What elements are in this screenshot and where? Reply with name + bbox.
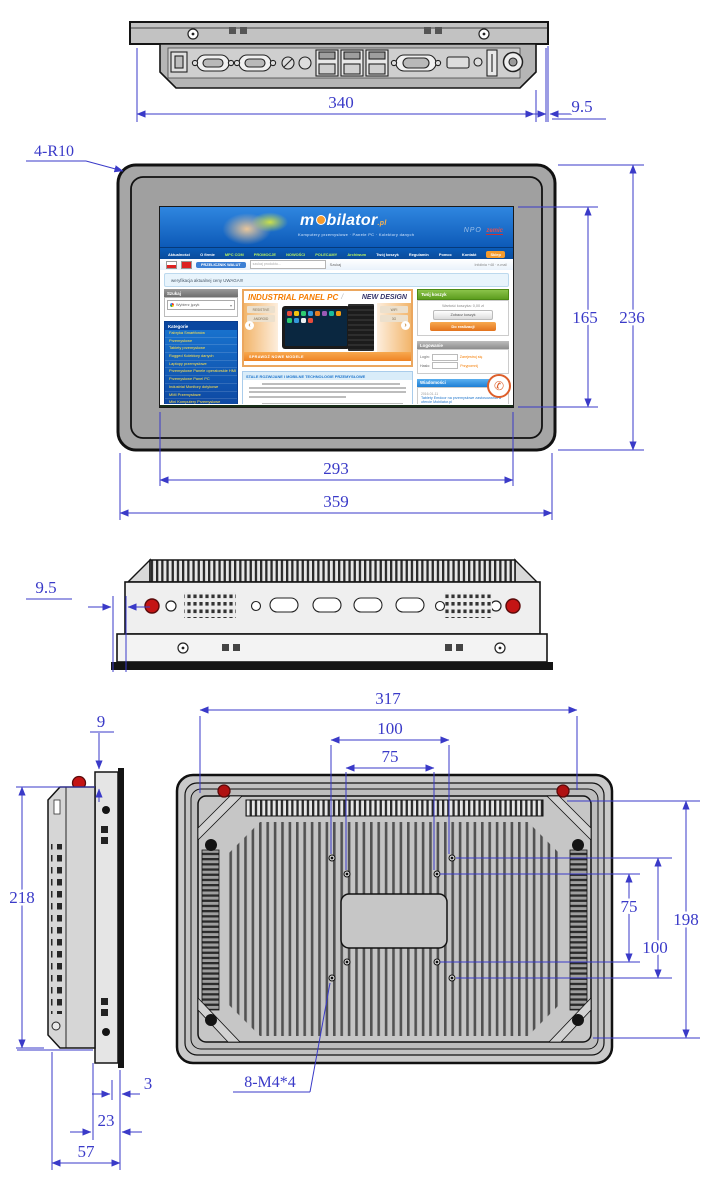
nav-item: PROMOCJE — [254, 252, 276, 257]
category-item: Mini Komputery Przemysłowe — [165, 399, 237, 404]
category-item: Fabryka Smartfonów — [165, 330, 237, 338]
heatsink-fins — [150, 560, 515, 582]
corner-hole — [572, 839, 584, 851]
dim-total-depth: 57 — [78, 1142, 96, 1161]
site-footer-bar — [160, 405, 513, 408]
banner-subtitle: NEW DESIGN — [362, 294, 407, 301]
dim-front-width: 359 — [323, 492, 349, 511]
category-menu: Kategorie Fabryka SmartfonówPrzemysłoweT… — [164, 321, 238, 404]
phone-icon: ✆ — [487, 374, 511, 398]
corner-hole — [205, 1014, 217, 1026]
view-cart-button: Zobacz koszyk — [433, 310, 493, 320]
main-column: INDUSTRIAL PANEL PC / NEW DESIGN RESISTI… — [242, 289, 413, 404]
screw-red — [506, 599, 520, 613]
header-photo — [210, 207, 298, 247]
banner-title: INDUSTRIAL PANEL PC — [248, 293, 338, 302]
category-item: Przemysłowe Panel PC — [165, 376, 237, 384]
dim-screen-height: 165 — [572, 308, 598, 327]
category-item: Laptopy przemysłowe — [165, 361, 237, 369]
cart-header: Twój koszyk — [417, 289, 509, 300]
left-column: Szukaj Wybierz język ▾ Kategorie Fabryka… — [164, 289, 238, 404]
search-widget-header: Szukaj — [164, 289, 238, 297]
label-corner-radius: 4-R10 — [34, 143, 74, 160]
carousel-next-icon: › — [401, 321, 410, 330]
vent-column — [51, 844, 62, 1014]
promo-banner: INDUSTRIAL PANEL PC / NEW DESIGN RESISTI… — [242, 289, 413, 367]
vent-grid — [444, 592, 492, 618]
register-link: Zarejestruj się — [460, 355, 483, 359]
dim-bezel: 3 — [144, 1074, 153, 1093]
article-header: STALE ROZWIJANE I MOBILNE TECHNOLOGIE PR… — [243, 372, 412, 380]
flag-en-icon — [181, 261, 192, 269]
dim-vesa75-h: 75 — [382, 747, 399, 766]
screw-red — [145, 599, 159, 613]
nav-item: POLECAMY — [315, 252, 337, 257]
category-item: Przemysłowe — [165, 338, 237, 346]
chevron-down-icon: ▾ — [230, 303, 232, 308]
nav-item: Pomoc — [439, 252, 452, 257]
category-item: Tablety przemysłowe — [165, 345, 237, 353]
search-widget: Wybierz język ▾ — [164, 297, 238, 317]
drawing-linework: 340 9.5 4-R10 165 236 293 359 9.5 — [0, 0, 711, 1188]
vent-grid — [184, 592, 236, 618]
remind-link: Przypomnij — [460, 364, 478, 368]
login-header: Logowanie — [417, 341, 509, 349]
nav-item: Aktualności — [168, 252, 190, 257]
dim-body-depth: 23 — [98, 1111, 115, 1130]
dim-side-depth: 9.5 — [35, 578, 56, 597]
category-item: Industrial Monitory dotykowe — [165, 384, 237, 392]
contact-info: Infolinia +48 · e-mail — [475, 263, 507, 267]
dim-front-height: 236 — [619, 308, 645, 327]
front-bezel-edge — [118, 768, 124, 1068]
dim-vesa100-h: 100 — [377, 719, 403, 738]
serial-port — [313, 598, 341, 612]
panel-screen-website: mbilator.pl Komputery przemysłowe · Pane… — [160, 207, 513, 407]
login-field — [432, 354, 458, 361]
category-item: MMI Przemysłowe — [165, 392, 237, 400]
banner-chip: WIFI — [380, 306, 408, 313]
rear-view — [177, 775, 612, 1063]
category-item: Przemysłowe Panele operatorskie HMI — [165, 368, 237, 376]
flag-pl-icon — [166, 261, 177, 269]
carousel-prev-icon: ‹ — [245, 321, 254, 330]
reset-hole — [474, 58, 482, 66]
nav-item: NOWOŚCI — [286, 252, 305, 257]
dim-top-width: 340 — [328, 93, 354, 112]
center-plate — [341, 894, 447, 948]
corner-hole — [205, 839, 217, 851]
corner-hole — [572, 1014, 584, 1026]
nav-item: Sklep — [486, 251, 504, 258]
category-item: Rugged Kolektory danych — [165, 353, 237, 361]
technical-drawing-page: 340 9.5 4-R10 165 236 293 359 9.5 — [0, 0, 711, 1188]
site-header: mbilator.pl Komputery przemysłowe · Pane… — [160, 207, 513, 247]
screw-red — [557, 785, 569, 797]
audio-jack — [299, 57, 311, 69]
password-field — [432, 362, 458, 369]
article-box: STALE ROZWIJANE I MOBILNE TECHNOLOGIE PR… — [242, 371, 413, 404]
dim-screen-width: 293 — [323, 459, 349, 478]
top-vent-comb — [246, 800, 543, 816]
screw-red — [218, 785, 230, 797]
banner-strip: SPRAWDŹ NOWE MODELE — [244, 352, 411, 361]
site-logo: mbilator.pl — [300, 212, 387, 230]
pc-tower-image — [348, 304, 374, 351]
label-mount-holes: 8-M4*4 — [244, 1074, 296, 1091]
dim-vesa100-v: 100 — [642, 938, 668, 957]
checkout-button: Do realizacji — [430, 322, 496, 331]
serial-port — [270, 598, 298, 612]
currency-button: PRZELICZNIK WALUT — [196, 262, 246, 268]
hdmi-port — [447, 57, 469, 68]
serial-port — [354, 598, 382, 612]
cart-value: Wartość koszyka: 0,00 zł — [420, 304, 506, 308]
dim-vesa75-v: 75 — [621, 897, 638, 916]
category-header: Kategorie — [165, 322, 237, 330]
article-text — [243, 380, 412, 404]
top-view — [130, 22, 548, 88]
search-input: szukaj produktu... — [250, 260, 326, 269]
banner-chip: RESISTIVE — [247, 306, 275, 313]
site-tagline: Komputery przemysłowe · Panele PC · Kole… — [298, 232, 458, 237]
notice-bar: weryfikacja aktualnej ceny UWAGA!!! — [164, 273, 509, 287]
side-view — [111, 560, 553, 670]
cart-box: Wartość koszyka: 0,00 zł Zobacz koszyk D… — [417, 300, 509, 336]
site-subbar: PRZELICZNIK WALUT szukaj produktu... Szu… — [160, 259, 513, 270]
dim-back-height: 198 — [673, 910, 699, 929]
front-bezel-edge — [111, 662, 553, 670]
login-box: Login: Zarejestruj się Hasło: Przypomnij — [417, 349, 509, 374]
nav-item: Twój koszyk — [376, 252, 399, 257]
search-button: Szukaj — [330, 263, 341, 267]
side-profile-view — [48, 768, 124, 1068]
logo-circle-icon — [316, 215, 326, 225]
dim-top-depth: 9.5 — [571, 97, 592, 116]
serial-port — [396, 598, 424, 612]
tablet-image — [282, 306, 350, 349]
nav-item: O firmie — [200, 252, 215, 257]
banner-image: RESISTIVEANDROID WIFI3G ‹ › — [244, 303, 411, 352]
dim-back-width: 317 — [375, 689, 401, 708]
dim-profile-top: 9 — [97, 712, 106, 731]
google-icon — [170, 303, 174, 307]
partner-logos: NPO zemic — [464, 219, 503, 237]
nav-item: MPC COM — [225, 252, 244, 257]
dim-profile-height: 218 — [9, 888, 35, 907]
nav-item: Kontakt — [462, 252, 476, 257]
nav-item: Archiwum — [347, 252, 366, 257]
language-select: Wybierz język ▾ — [167, 300, 235, 310]
side-vent-comb — [202, 850, 219, 1010]
nav-item: Regulamin — [409, 252, 429, 257]
